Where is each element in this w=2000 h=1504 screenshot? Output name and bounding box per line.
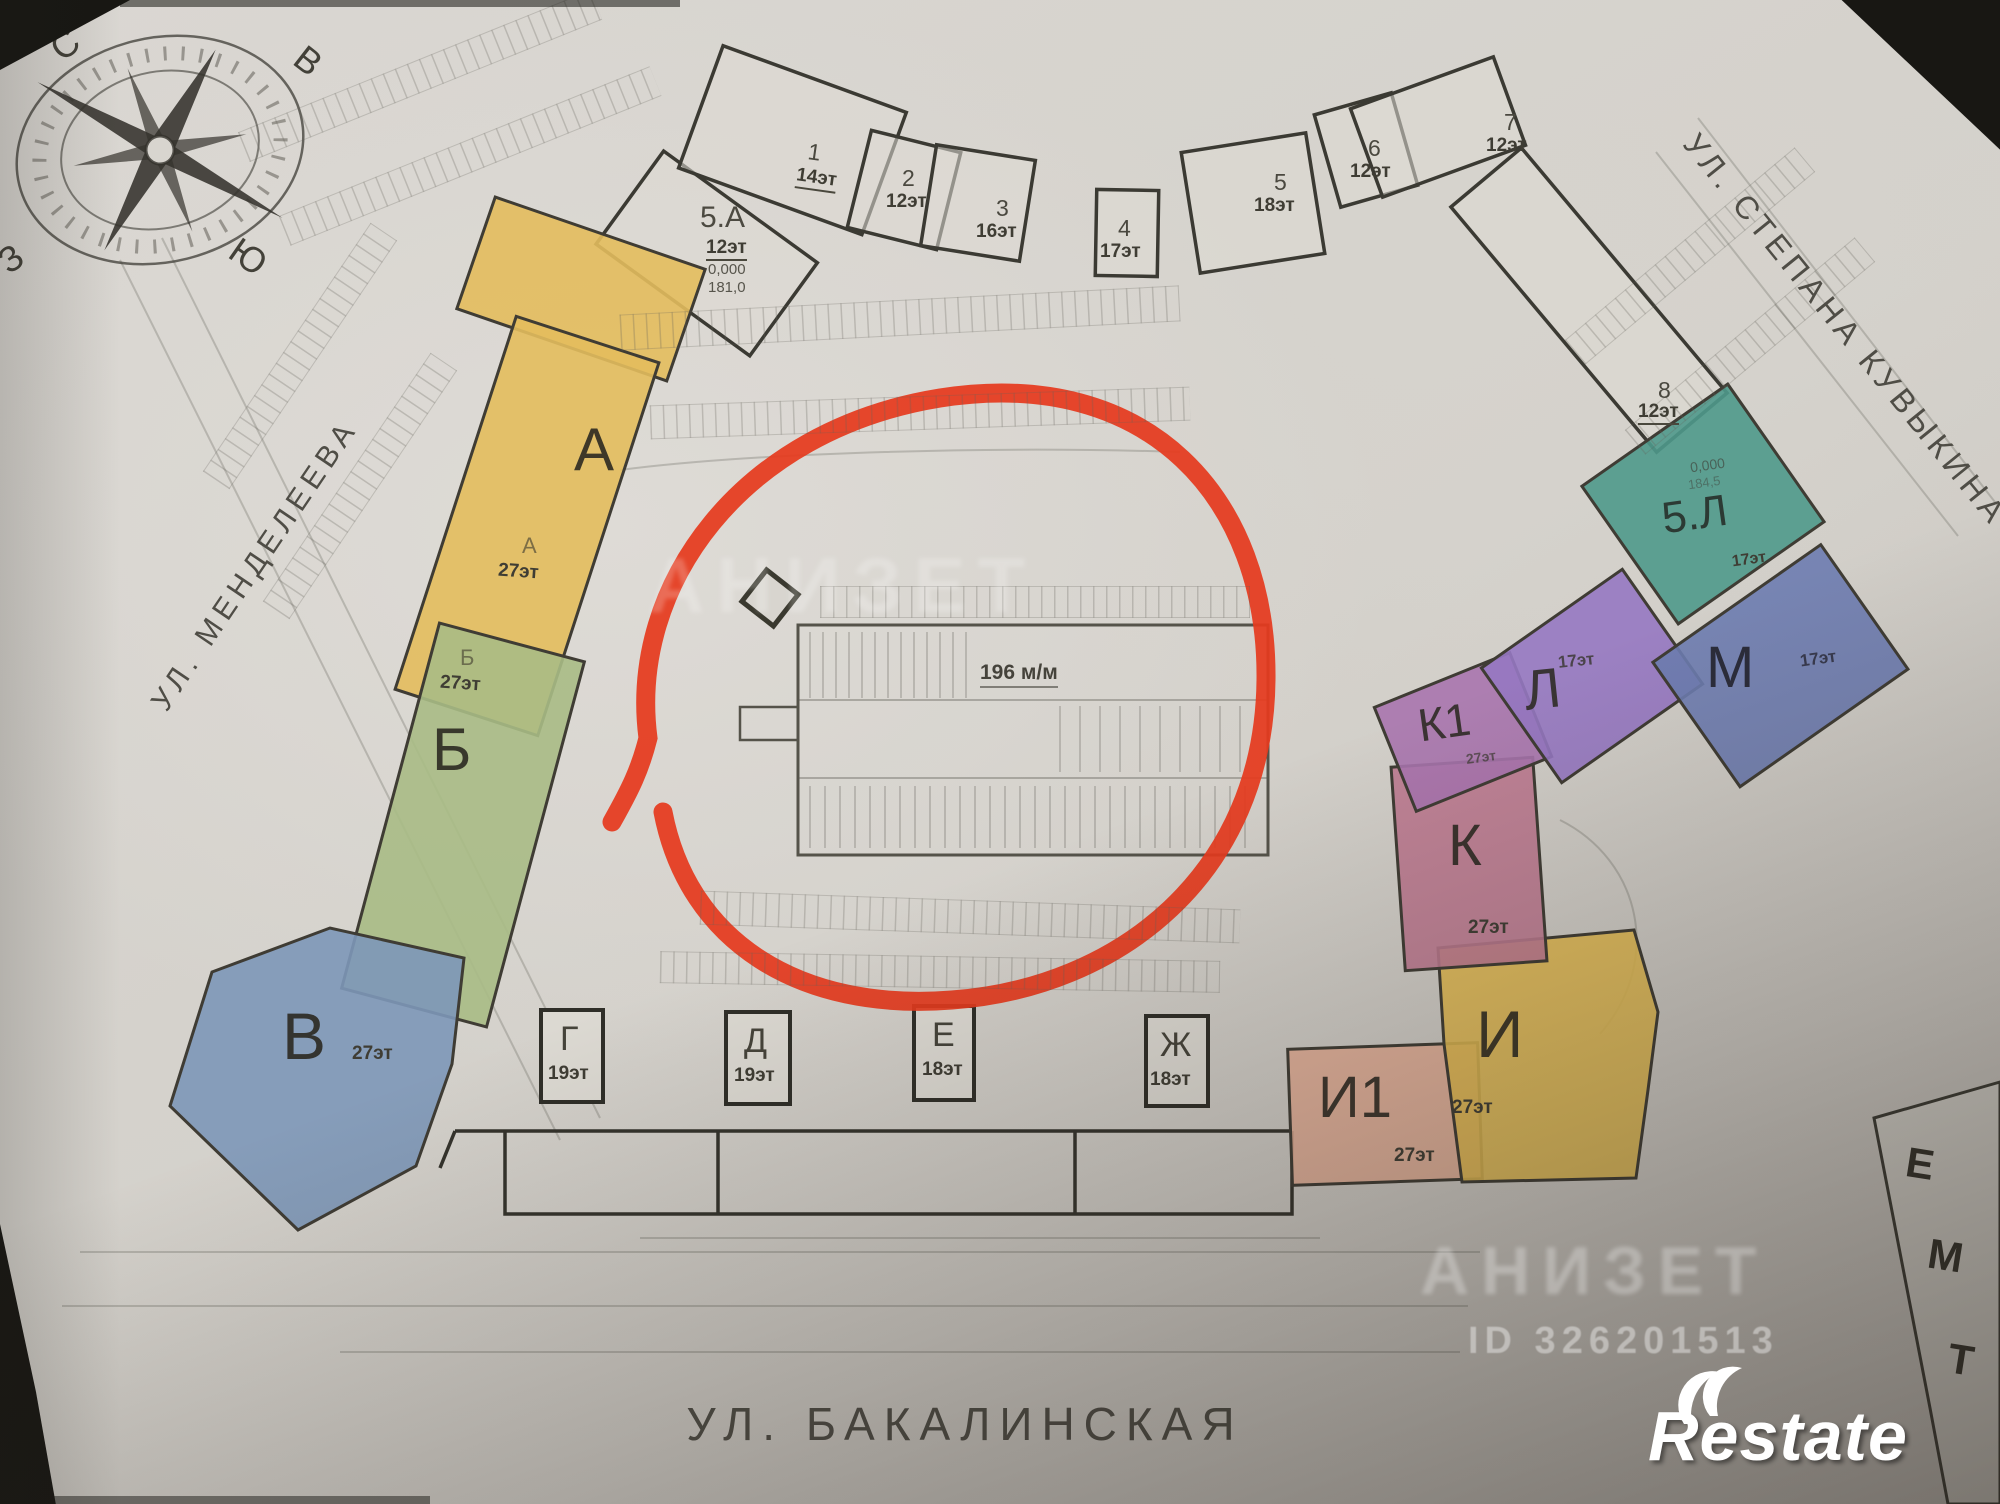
building-4-number: 4 bbox=[1118, 216, 1131, 240]
watermark-id: ID 326201513 bbox=[1468, 1320, 1779, 1363]
building-i-shape bbox=[1438, 930, 1658, 1182]
restate-logo: Restate bbox=[1648, 1396, 1908, 1476]
photo-edge-bottom bbox=[0, 1496, 430, 1504]
restate-logo-swoosh-icon bbox=[1676, 1366, 1766, 1430]
building-d-floors: 19эт bbox=[734, 1066, 775, 1086]
building-7-number: 7 bbox=[1504, 110, 1517, 134]
building-6-number: 6 bbox=[1368, 136, 1381, 160]
building-5l-name: 5.Л bbox=[1659, 488, 1730, 543]
building-5a-floors: 12эт bbox=[706, 238, 747, 261]
building-2-floors: 12эт bbox=[886, 192, 927, 212]
building-3-number: 3 bbox=[996, 196, 1009, 220]
building-5a-name: 5.А bbox=[700, 202, 745, 234]
building-v-shape bbox=[170, 928, 464, 1230]
legend-row-m: М bbox=[1925, 1232, 1966, 1281]
bottom-towers bbox=[541, 1006, 1208, 1106]
building-v-letter: В bbox=[282, 1002, 326, 1071]
building-zh-floors: 18эт bbox=[1150, 1070, 1191, 1090]
building-5-floors: 18эт bbox=[1254, 196, 1295, 216]
building-5-number: 5 bbox=[1274, 170, 1287, 194]
building-e-letter: Е bbox=[932, 1018, 955, 1054]
building-b-letter: Б bbox=[432, 718, 471, 781]
building-a-letter: А bbox=[574, 418, 614, 481]
building-a-small-letter: А bbox=[522, 534, 537, 557]
building-5a-elevation: 0,000 bbox=[708, 262, 746, 278]
building-8-floors: 12эт bbox=[1638, 402, 1679, 425]
photo-edge-top bbox=[120, 0, 680, 7]
site-plan-photo: С В З Ю УЛ. МЕНДЕЛЕЕВА УЛ. СТЕПАНА КУВЫК… bbox=[0, 0, 2000, 1504]
building-k1-letter: К1 bbox=[1415, 695, 1474, 750]
building-a-floors: 27эт bbox=[497, 561, 539, 584]
watermark-ghost-center: АНИЗЕТ bbox=[648, 540, 1088, 631]
building-6-floors: 12эт bbox=[1350, 162, 1391, 182]
street-bakalinskaya-label: УЛ. БАКАЛИНСКАЯ bbox=[686, 1400, 1243, 1448]
building-k-floors: 27эт bbox=[1468, 918, 1509, 938]
building-i1-letter: И1 bbox=[1318, 1068, 1392, 1129]
building-i1-floors: 27эт bbox=[1394, 1146, 1435, 1166]
building-3-floors: 16эт bbox=[976, 222, 1017, 242]
building-i-floors: 27эт bbox=[1452, 1098, 1493, 1118]
building-8-number: 8 bbox=[1658, 378, 1671, 402]
building-i-letter: И bbox=[1476, 1000, 1523, 1069]
building-3-shape bbox=[921, 145, 1036, 261]
building-l-letter: Л bbox=[1521, 658, 1564, 720]
building-g-floors: 19эт bbox=[548, 1064, 589, 1084]
building-v-floors: 27эт bbox=[352, 1044, 393, 1064]
bottom-chain bbox=[440, 1131, 1292, 1214]
building-d-letter: Д bbox=[744, 1024, 767, 1060]
building-2-number: 2 bbox=[902, 166, 915, 190]
building-5a-mark: 181,0 bbox=[708, 280, 746, 296]
building-g-letter: Г bbox=[560, 1022, 578, 1058]
building-b-floors: 27эт bbox=[439, 673, 481, 696]
building-4-floors: 17эт bbox=[1100, 242, 1141, 262]
parking-capacity-label: 196 м/м bbox=[980, 662, 1058, 688]
watermark-ghost-bottom: АНИЗЕТ bbox=[1420, 1232, 1769, 1310]
building-l-floors: 17эт bbox=[1557, 650, 1595, 672]
building-zh-letter: Ж bbox=[1160, 1028, 1191, 1064]
building-k-letter: К bbox=[1448, 816, 1482, 877]
building-b-small-letter: Б bbox=[460, 646, 474, 669]
building-7-floors: 12эт bbox=[1486, 136, 1527, 156]
building-5-shape bbox=[1181, 133, 1325, 273]
building-m-letter: М bbox=[1706, 638, 1754, 699]
building-e-floors: 18эт bbox=[922, 1060, 963, 1080]
